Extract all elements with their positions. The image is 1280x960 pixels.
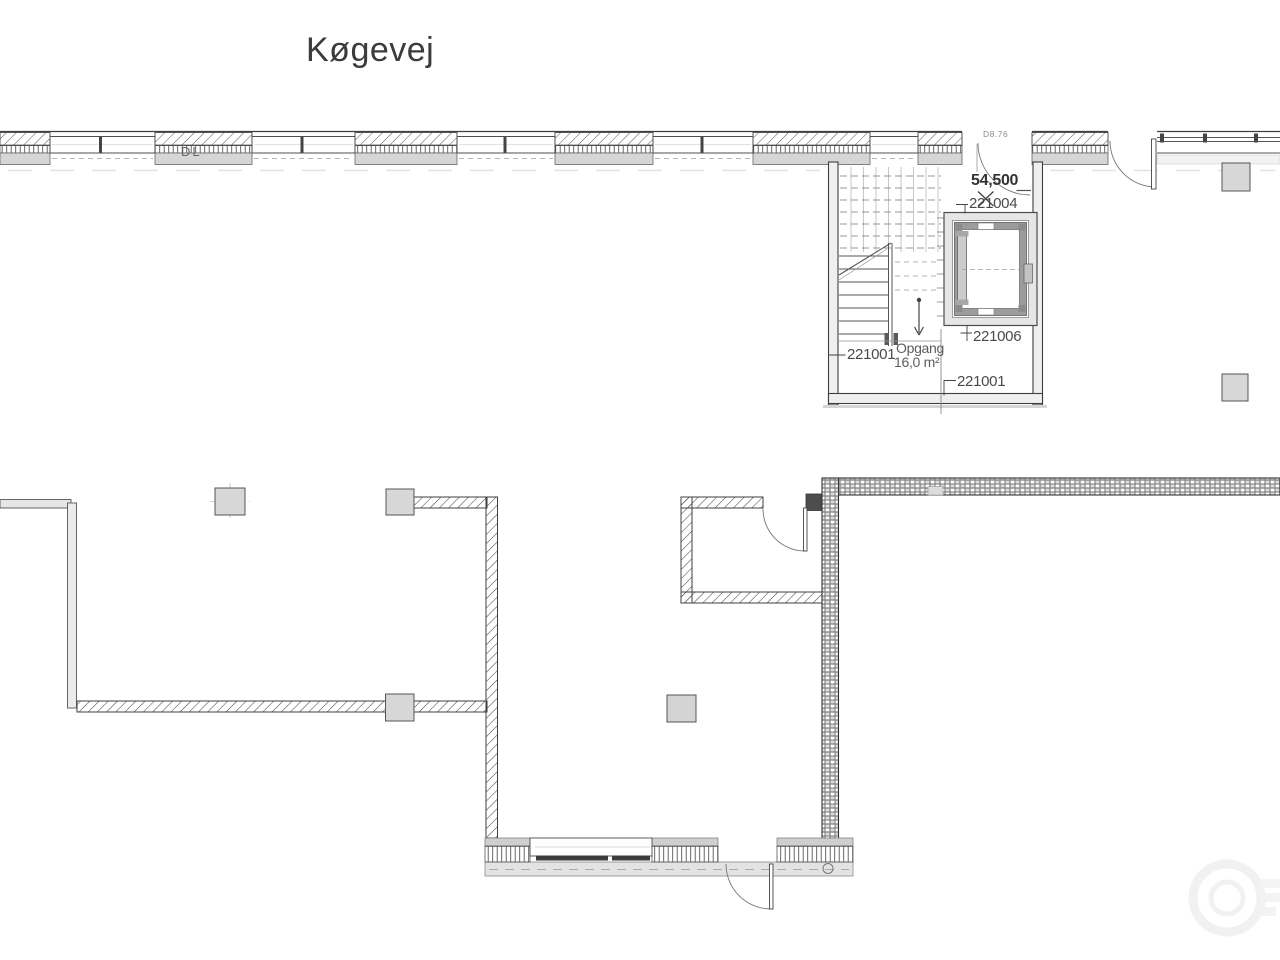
door-tag-label: D8.76 (981, 130, 1010, 139)
masonry-wall-vertical (822, 478, 839, 839)
bottom-window (530, 838, 652, 861)
masonry-walls (822, 478, 1280, 839)
down-arrow (915, 298, 924, 335)
floor-plan: Køgevej DL D8.76 54,500 221004 221006 22… (0, 0, 1280, 960)
facade-dl-label: DL (181, 145, 202, 158)
masonry-wall-horizontal (838, 478, 1280, 495)
stair-stringer (889, 243, 893, 346)
room-id-221006: 221006 (973, 329, 1021, 344)
room-id-221001-bottom: 221001 (957, 374, 1005, 389)
watermark-logo (1193, 864, 1280, 932)
column (386, 694, 415, 721)
right-room-door-arc (1110, 139, 1156, 189)
door-leaf (1152, 139, 1157, 189)
stair-area-label: 16,0 m² (894, 355, 939, 369)
column (667, 695, 696, 722)
column (1222, 374, 1248, 401)
stair-name-label: Opgang (896, 341, 944, 355)
left-wing-walls (0, 497, 498, 838)
elevator-rail (958, 236, 967, 300)
columns (210, 163, 1250, 722)
street-label: Køgevej (306, 33, 434, 67)
small-room-walls (681, 494, 823, 603)
room-id-221001-left: 221001 (847, 347, 895, 362)
level-mark-label: 54,500 (971, 173, 1018, 189)
small-room-door-arc (763, 508, 807, 551)
column (386, 489, 414, 515)
column (1222, 163, 1250, 191)
elevator (944, 213, 1037, 326)
door-leaf (804, 508, 808, 551)
door-jamb-block (806, 494, 823, 511)
bottom-facade (485, 838, 853, 909)
column (215, 488, 245, 515)
room-id-221004: 221004 (969, 196, 1017, 211)
door-leaf (770, 864, 774, 909)
top-facade (0, 132, 1280, 196)
staircase (838, 167, 945, 346)
facade-window-band-right (1157, 134, 1280, 165)
